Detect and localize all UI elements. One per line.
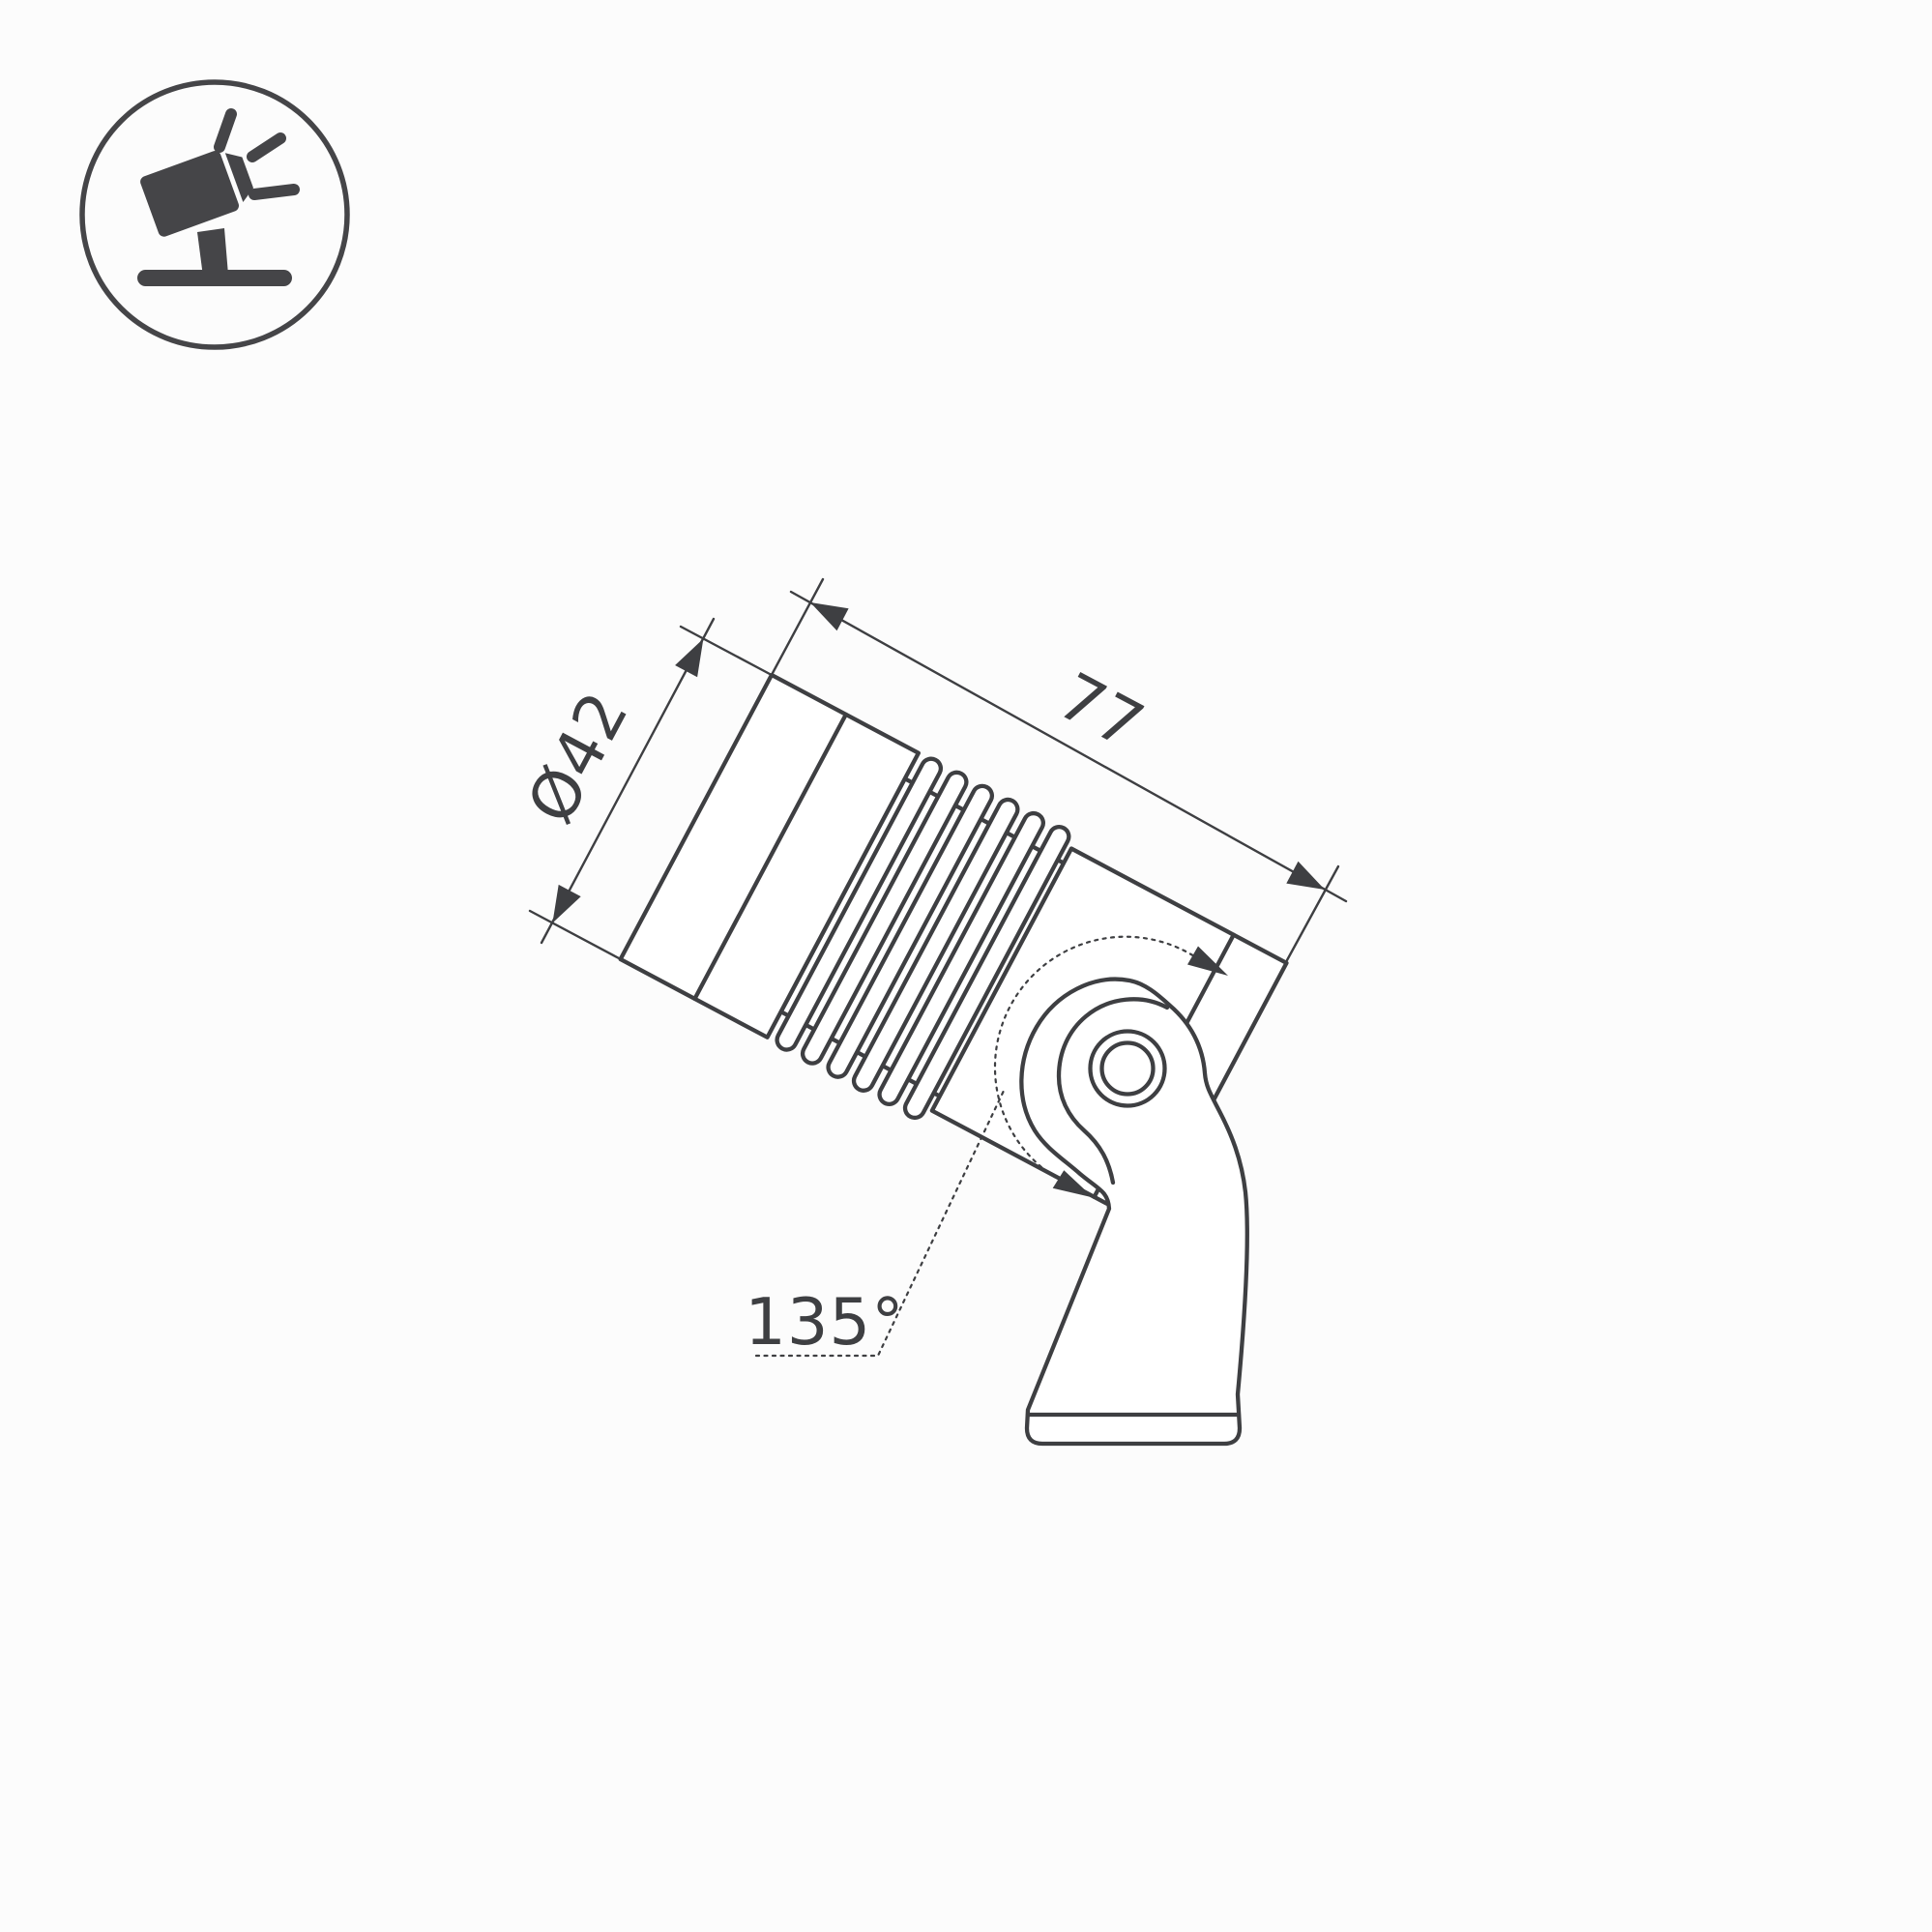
angle-label: 135° — [745, 1284, 904, 1360]
spotlight-badge — [82, 82, 347, 347]
drawing-canvas: Ø42 77 — [0, 0, 1932, 1932]
angle-callout: 135° — [745, 1091, 1004, 1360]
length-label: 77 — [1046, 659, 1156, 765]
extension-line — [773, 579, 823, 673]
dimension-arrow — [552, 885, 580, 923]
dimension-arrow — [1286, 862, 1325, 890]
dimension-arrow — [810, 602, 849, 630]
diameter-label: Ø42 — [512, 680, 643, 835]
dimension-arrow — [675, 639, 703, 678]
extension-line — [530, 911, 619, 958]
pivot-screw-circle — [1102, 1043, 1154, 1095]
technical-drawing: Ø42 77 — [0, 0, 1932, 1932]
tilted-spotlight-icon — [137, 114, 294, 286]
